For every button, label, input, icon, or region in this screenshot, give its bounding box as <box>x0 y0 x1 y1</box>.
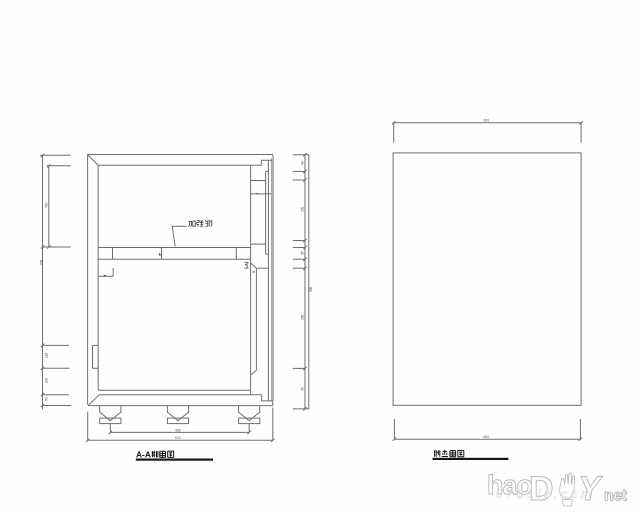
svg-text:30: 30 <box>301 251 305 255</box>
svg-text:900: 900 <box>40 259 44 265</box>
svg-text:150: 150 <box>301 206 305 212</box>
svg-text:120: 120 <box>45 377 49 383</box>
svg-text:40: 40 <box>301 161 305 165</box>
svg-text:net: net <box>604 488 628 505</box>
svg-text:900: 900 <box>309 286 313 292</box>
svg-text:110: 110 <box>45 353 49 358</box>
svg-text:A-A: A-A <box>136 449 151 459</box>
svg-text:600: 600 <box>484 119 490 123</box>
svg-text:600: 600 <box>175 436 181 440</box>
svg-text:600: 600 <box>484 435 490 439</box>
svg-text:485: 485 <box>175 428 181 432</box>
svg-text:96: 96 <box>301 387 305 391</box>
svg-text:0731jz.com: 0731jz.com <box>496 489 595 501</box>
svg-text:710: 710 <box>45 202 49 208</box>
svg-text:50: 50 <box>45 397 49 401</box>
svg-text:280: 280 <box>301 314 305 320</box>
